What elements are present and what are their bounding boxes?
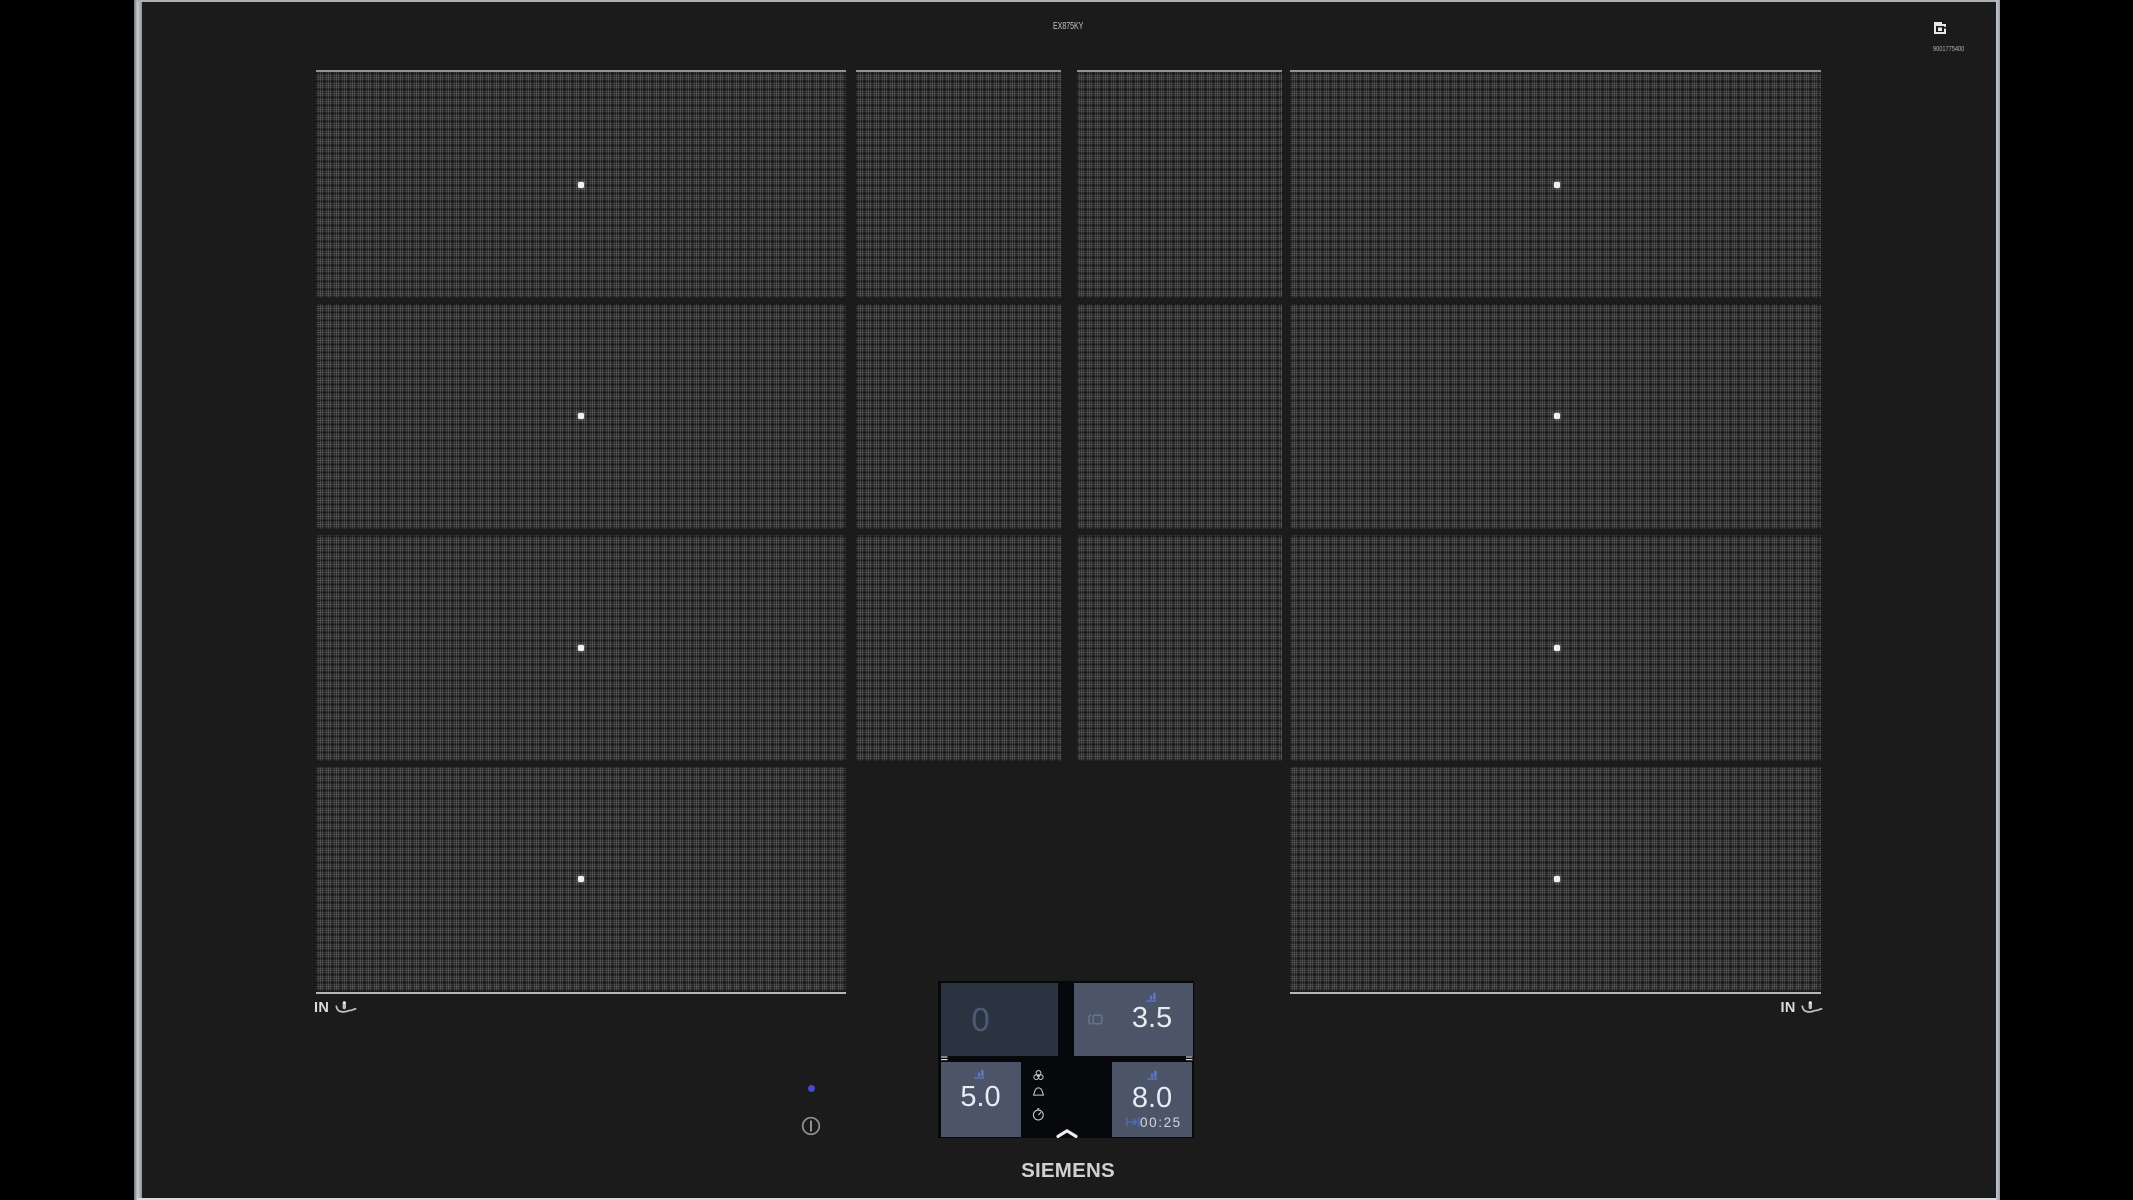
svg-text:9001775400: 9001775400 <box>1933 45 1964 53</box>
svg-text:EX875KY: EX875KY <box>1053 20 1084 31</box>
